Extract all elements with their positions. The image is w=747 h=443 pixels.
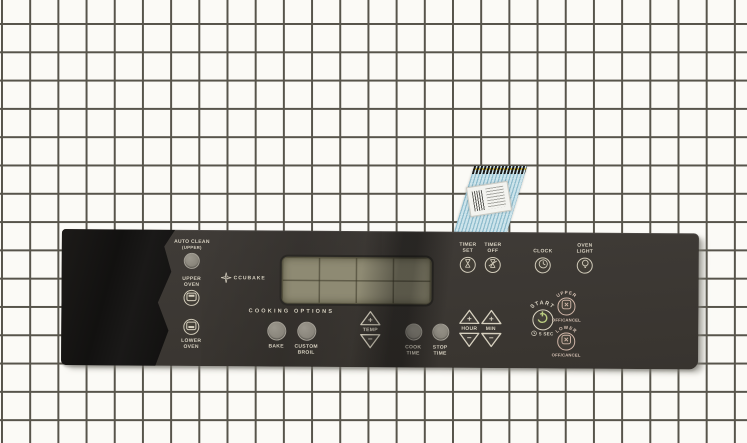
product-photo-stage: AUTO CLEAN (UPPER) UPPER OVEN LOWER OVEN: [0, 0, 747, 443]
svg-text:+: +: [489, 314, 494, 323]
upper-oven-icon: [185, 289, 197, 307]
min-down-button[interactable]: −: [480, 332, 502, 353]
clock-button[interactable]: [535, 257, 551, 273]
oven-light-button[interactable]: [577, 258, 593, 274]
cook-time-label: COOK TIME: [405, 344, 421, 357]
mini-clock-icon: [531, 330, 537, 336]
label-fineprint: [485, 186, 506, 210]
timer-off-button[interactable]: [485, 257, 501, 273]
stop-time-button[interactable]: [432, 323, 449, 340]
svg-text:+: +: [467, 314, 472, 323]
triangle-down-icon: −: [359, 333, 381, 349]
light-bulb-icon: [579, 257, 590, 275]
cable-contact-tips: [472, 166, 527, 174]
hourglass-off-icon: [488, 256, 498, 274]
custom-broil-label: CUSTOM BROIL: [294, 344, 317, 357]
upper-off-cancel-label: OFF/CANCEL: [552, 317, 581, 322]
upper-oven-button[interactable]: [183, 290, 199, 306]
hour-label: HOUR: [461, 325, 477, 331]
lower-off-cancel-label: OFF/CANCEL: [552, 352, 581, 357]
oven-control-panel: AUTO CLEAN (UPPER) UPPER OVEN LOWER OVEN: [61, 229, 699, 369]
timer-set-label: TIMER SET: [459, 242, 476, 255]
clock-icon: [537, 256, 548, 274]
timer-off-label: TIMER OFF: [484, 242, 501, 255]
barcode-icon: [472, 190, 486, 211]
cancel-x-icon: [560, 332, 572, 350]
lower-oven-icon: [185, 318, 197, 336]
temp-down-button[interactable]: −: [359, 333, 381, 354]
min-label: MIN: [486, 325, 496, 331]
svg-text:+: +: [368, 316, 373, 325]
accubake-star-icon: A: [221, 272, 232, 283]
hourglass-icon: [463, 256, 473, 274]
stop-time-label: STOP TIME: [433, 345, 448, 358]
custom-broil-button[interactable]: [297, 321, 316, 340]
bake-label: BAKE: [268, 343, 283, 349]
triangle-up-icon: +: [359, 310, 381, 326]
auto-clean-label: AUTO CLEAN (UPPER): [174, 239, 210, 251]
lower-oven-label: LOWER OVEN: [181, 338, 201, 351]
svg-text:−: −: [368, 335, 373, 344]
auto-clean-button[interactable]: [184, 253, 200, 269]
svg-text:−: −: [488, 333, 493, 342]
accubake-logo: A CCUBAKE: [221, 272, 266, 283]
clock-label: CLOCK: [533, 248, 552, 254]
svg-text:−: −: [467, 333, 472, 342]
svg-text:A: A: [224, 276, 227, 280]
timer-set-button[interactable]: [460, 257, 476, 273]
bake-button[interactable]: [267, 321, 286, 340]
hour-down-button[interactable]: −: [458, 332, 480, 353]
lcd-display: [281, 257, 431, 305]
cancel-x-icon: [560, 297, 572, 315]
triangle-up-icon: +: [480, 309, 502, 325]
lower-oven-button[interactable]: [183, 319, 199, 335]
upper-oven-label: UPPER OVEN: [182, 276, 201, 289]
oven-light-label: OVEN LIGHT: [577, 243, 594, 256]
triangle-up-icon: +: [458, 309, 480, 325]
upper-off-cancel-button[interactable]: [558, 298, 576, 316]
power-icon: [535, 310, 549, 329]
lower-off-cancel-button[interactable]: [557, 333, 575, 351]
glossy-film-region: [61, 229, 180, 369]
cooking-options-heading: COOKING OPTIONS: [249, 308, 335, 315]
cook-time-button[interactable]: [405, 323, 422, 340]
accubake-text: CCUBAKE: [234, 275, 266, 281]
triangle-down-icon: −: [458, 332, 480, 348]
triangle-down-icon: −: [480, 332, 502, 348]
